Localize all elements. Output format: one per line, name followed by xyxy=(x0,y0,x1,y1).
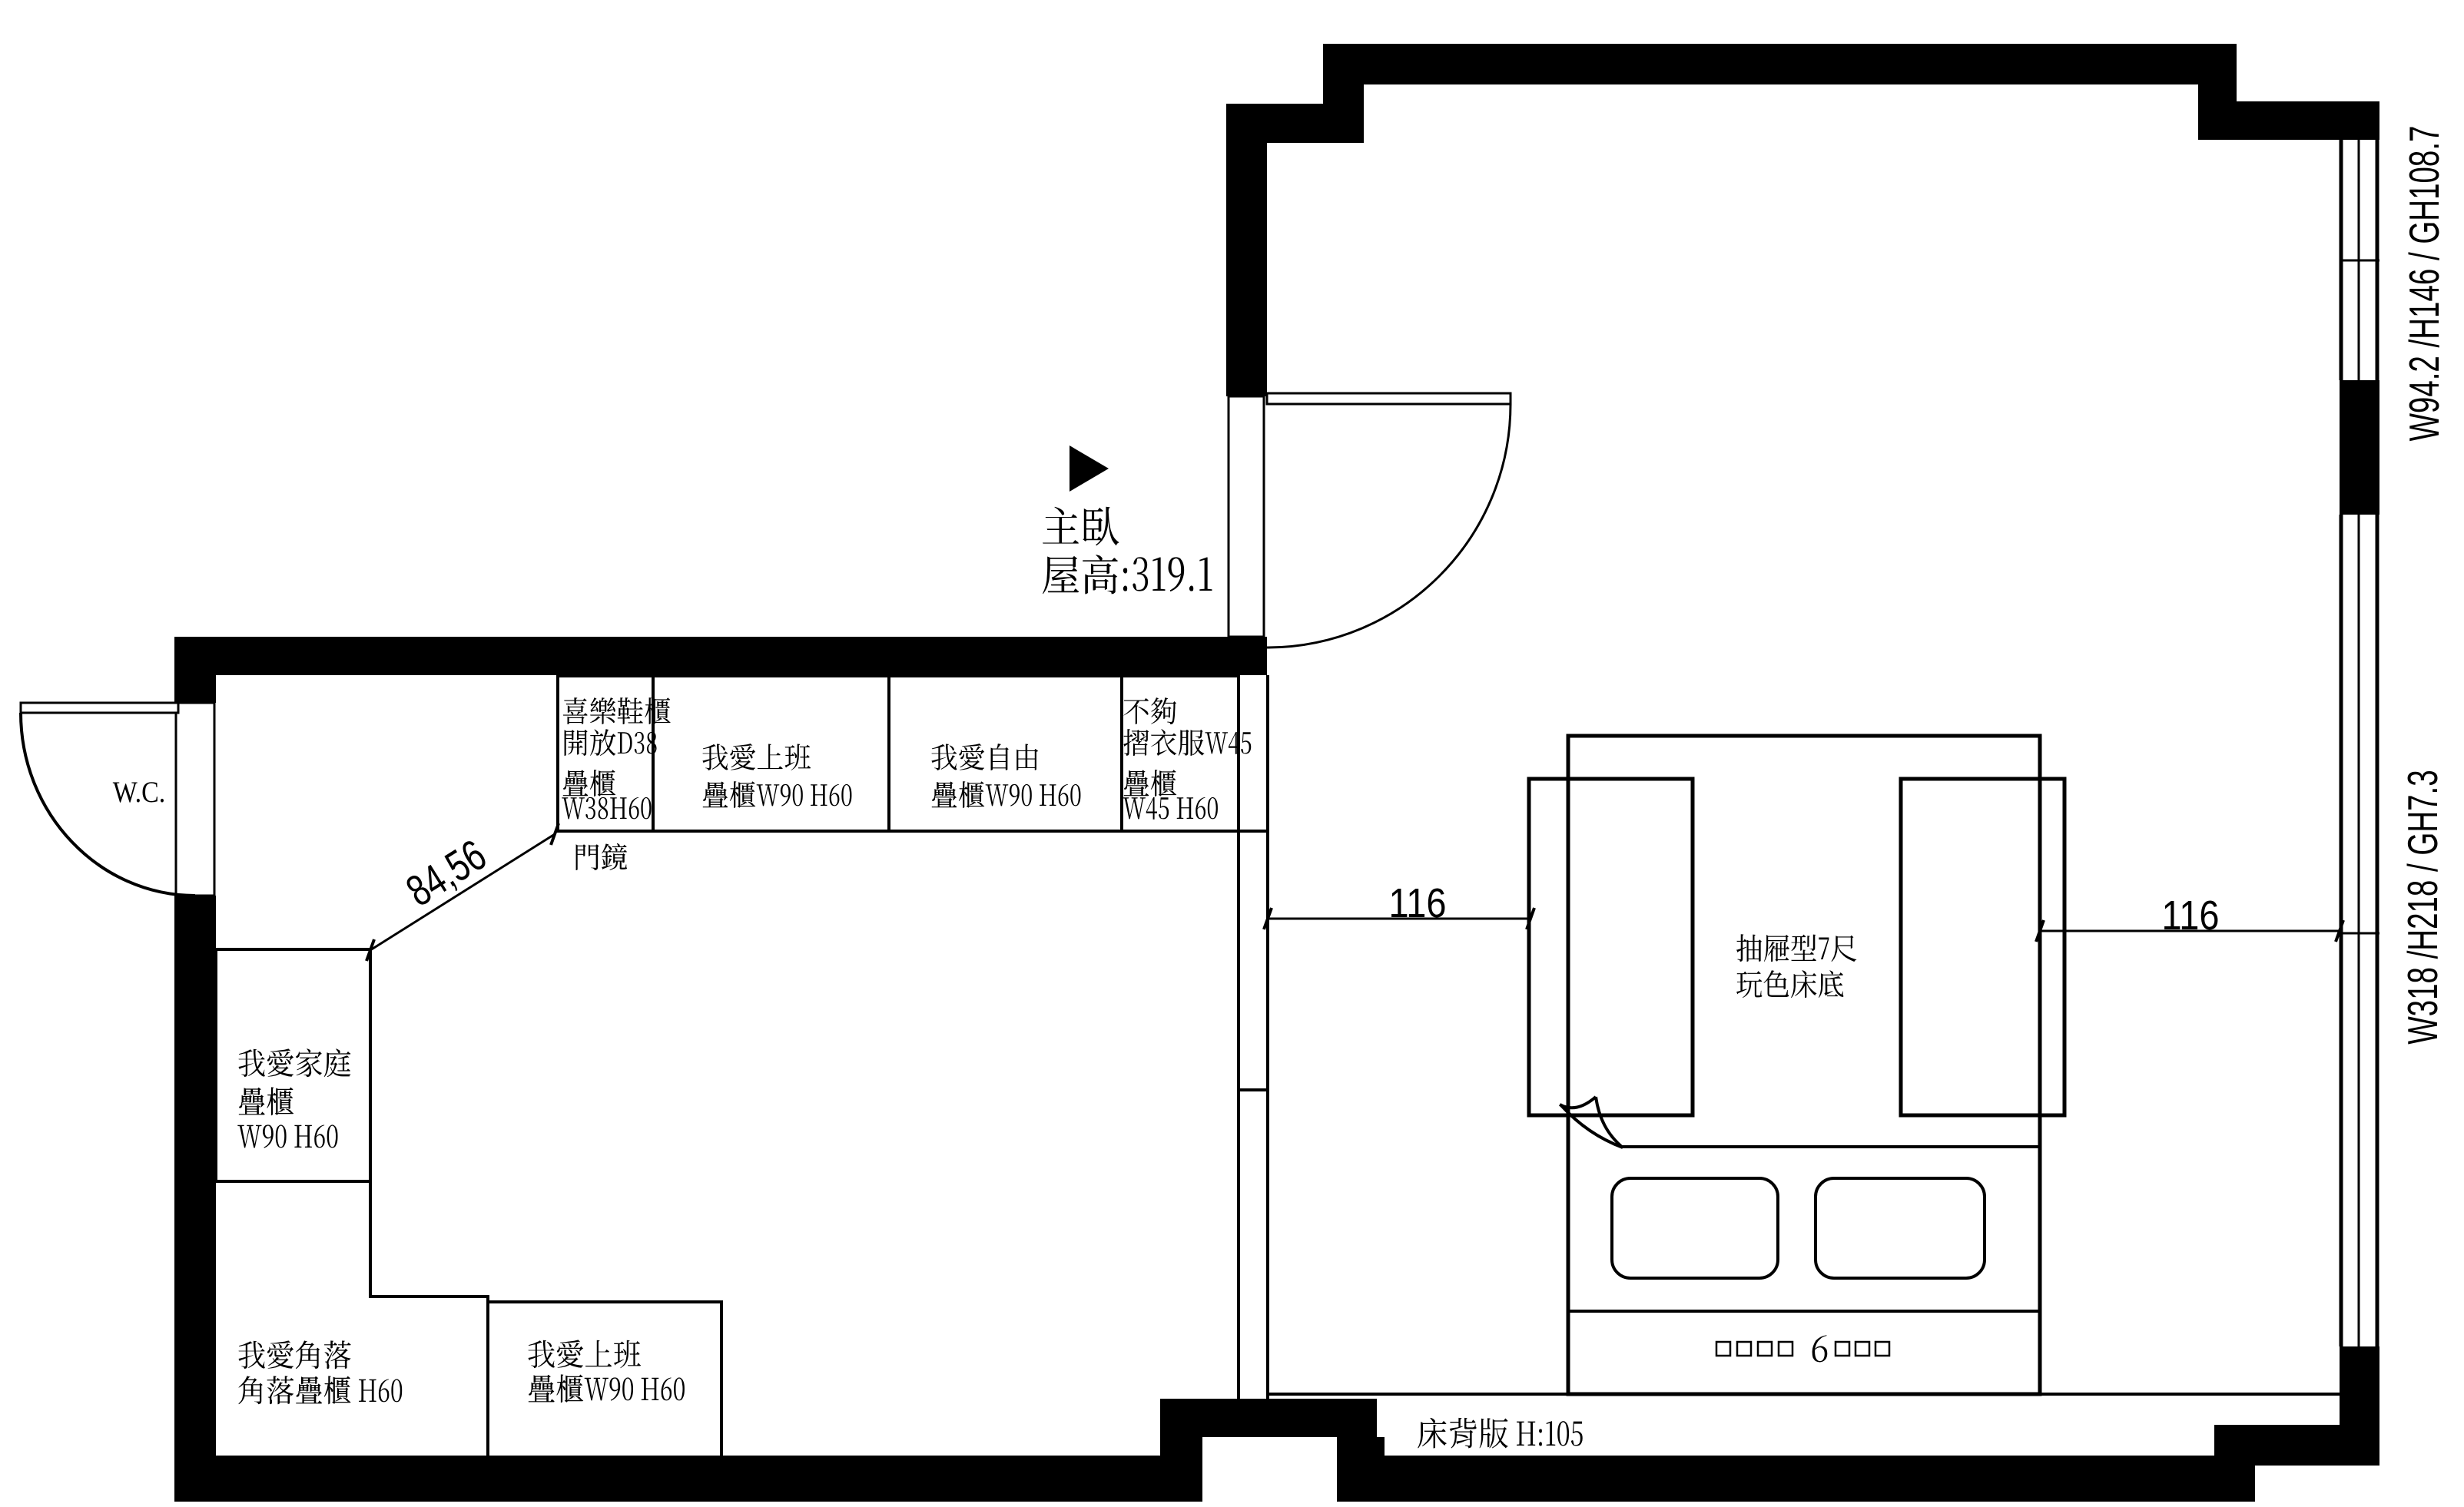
svg-text:W.C.: W.C. xyxy=(113,775,166,809)
svg-text:W318 /H218 / GH7.3: W318 /H218 / GH7.3 xyxy=(2399,770,2446,1044)
svg-text:116: 116 xyxy=(1389,879,1447,926)
svg-text:W94.2 /H146 / GH108.7: W94.2 /H146 / GH108.7 xyxy=(2401,126,2448,442)
svg-text:116: 116 xyxy=(2162,892,2220,939)
